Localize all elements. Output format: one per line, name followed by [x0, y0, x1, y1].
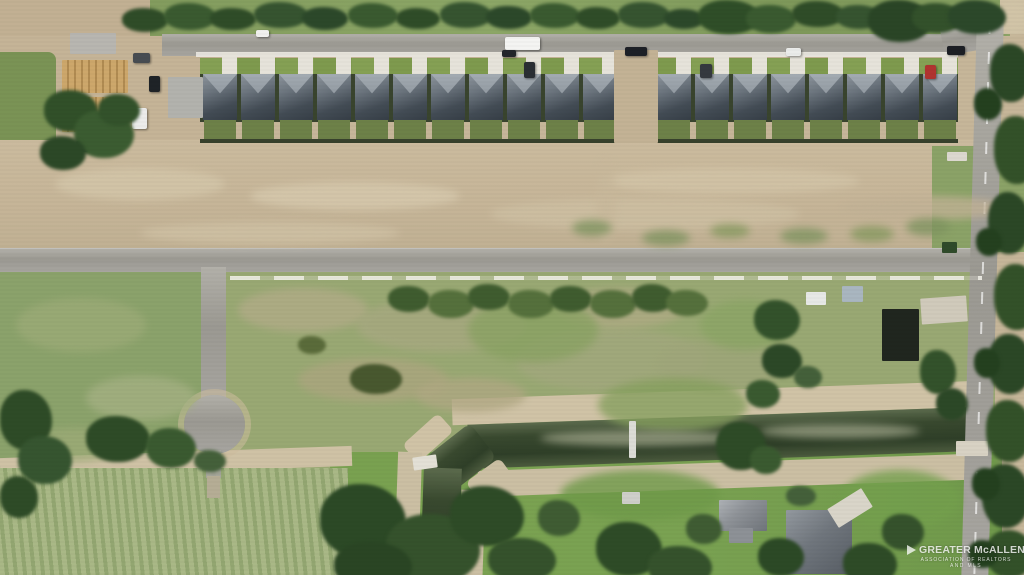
backyard: [204, 120, 236, 140]
ground-patch: [840, 196, 1010, 220]
driveway: [450, 52, 465, 76]
tree: [746, 5, 796, 33]
structure: [614, 50, 658, 143]
tree: [530, 3, 580, 28]
driveway: [866, 52, 881, 76]
back-fence: [730, 139, 768, 143]
driveway: [412, 52, 427, 76]
house-roof: [695, 74, 729, 120]
backyard: [356, 120, 388, 140]
tree: [350, 364, 402, 394]
ground-patch: [572, 220, 612, 236]
tree: [794, 366, 822, 388]
vehicle: [786, 48, 801, 56]
backyard: [508, 120, 540, 140]
back-fence: [542, 139, 580, 143]
driveway: [828, 52, 843, 76]
driveway: [752, 52, 767, 76]
vehicle: [133, 53, 150, 63]
roof-ridge-face: [203, 74, 237, 120]
structure: [882, 309, 919, 361]
back-fence: [920, 139, 958, 143]
ground-patch: [560, 470, 720, 520]
tree: [538, 500, 580, 536]
tree: [388, 286, 430, 312]
tree: [976, 228, 1002, 256]
structure: [62, 60, 128, 93]
driveway: [942, 52, 957, 76]
structure: [622, 492, 640, 504]
tree: [666, 290, 708, 316]
watermark-title-row: GREATER McALLEN: [912, 544, 1020, 556]
tree: [618, 2, 670, 28]
house-roof: [507, 74, 541, 120]
house-roof: [771, 74, 805, 120]
watermark-title: GREATER McALLEN: [919, 544, 1024, 556]
roof-ridge-face: [241, 74, 275, 120]
backyard: [848, 120, 880, 140]
house-roof: [469, 74, 503, 120]
driveway: [714, 52, 729, 76]
driveway: [488, 52, 503, 76]
driveway: [564, 52, 579, 76]
roof-ridge-face: [507, 74, 541, 120]
tree: [0, 476, 38, 518]
tree: [40, 136, 86, 170]
tree: [302, 7, 348, 30]
tree: [348, 3, 398, 28]
tree: [508, 290, 554, 318]
driveway: [336, 52, 351, 76]
driveway: [298, 52, 313, 76]
tree: [590, 290, 636, 318]
main-road-sidewalk: [230, 276, 982, 280]
backyard: [772, 120, 804, 140]
ground-patch: [598, 378, 748, 432]
tree: [754, 300, 800, 340]
house-roof: [733, 74, 767, 120]
back-fence: [428, 139, 466, 143]
roof-ridge-face: [583, 74, 617, 120]
watermark-subtitle2: AND MLS: [912, 563, 1020, 569]
house-roof: [279, 74, 313, 120]
house-roof: [355, 74, 389, 120]
backyard: [470, 120, 502, 140]
roof-ridge-face: [279, 74, 313, 120]
back-fence: [654, 139, 692, 143]
house-roof: [923, 74, 957, 120]
house-roof: [847, 74, 881, 120]
back-fence: [580, 139, 618, 143]
vehicle: [149, 76, 160, 92]
tree: [746, 380, 780, 408]
roof-ridge-face: [885, 74, 919, 120]
tree: [98, 94, 140, 126]
ground-patch: [140, 222, 400, 244]
back-fence: [768, 139, 806, 143]
driveway: [222, 52, 237, 76]
tree: [486, 6, 532, 29]
ground-patch: [642, 230, 690, 246]
vehicle: [700, 64, 712, 78]
main-road: [0, 248, 986, 272]
vehicle: [625, 47, 647, 56]
back-fence: [466, 139, 504, 143]
driveway: [676, 52, 691, 76]
house-roof: [545, 74, 579, 120]
structure: [920, 295, 968, 324]
backyard: [696, 120, 728, 140]
back-fence: [882, 139, 920, 143]
tree: [450, 486, 524, 546]
ground-patch: [16, 298, 146, 352]
driveway: [260, 52, 275, 76]
ground-patch: [416, 378, 526, 412]
back-fence: [276, 139, 314, 143]
tree: [440, 2, 492, 28]
tree: [948, 0, 1006, 34]
tree: [758, 538, 804, 575]
backyard: [810, 120, 842, 140]
roof-ridge-face: [545, 74, 579, 120]
house-roof: [203, 74, 237, 120]
tree: [936, 388, 968, 420]
backyard: [546, 120, 578, 140]
backyard: [658, 120, 690, 140]
roof-ridge-face: [695, 74, 729, 120]
house-roof: [431, 74, 465, 120]
house-roof: [885, 74, 919, 120]
ground-patch: [238, 288, 368, 332]
roof-ridge-face: [317, 74, 351, 120]
aerial-photo: GREATER McALLEN ASSOCIATION OF REALTORS …: [0, 0, 1024, 575]
house-roof: [317, 74, 351, 120]
house-roof: [583, 74, 617, 120]
stub-dirt-path: [207, 476, 220, 498]
driveway: [904, 52, 919, 76]
roof-ridge-face: [431, 74, 465, 120]
tree: [550, 286, 592, 312]
ground-patch: [780, 228, 828, 244]
tree: [786, 486, 816, 506]
tree: [974, 348, 1000, 378]
backyard: [318, 120, 350, 140]
roof-ridge-face: [923, 74, 957, 120]
ground-patch: [600, 168, 860, 194]
structure: [168, 77, 203, 118]
back-fence: [238, 139, 276, 143]
ground-patch: [850, 226, 894, 242]
structure: [629, 421, 636, 458]
structure: [806, 292, 826, 305]
tree: [686, 514, 722, 544]
ground-patch: [540, 430, 740, 446]
roof-ridge-face: [355, 74, 389, 120]
tree: [750, 446, 782, 474]
backyard: [734, 120, 766, 140]
tree: [994, 264, 1024, 330]
ground-patch: [760, 424, 920, 438]
tree: [122, 8, 168, 32]
ground-patch: [55, 168, 225, 200]
backyard: [394, 120, 426, 140]
ground-patch: [490, 198, 800, 230]
backyard: [584, 120, 616, 140]
ground-patch: [250, 182, 460, 210]
backyard: [242, 120, 274, 140]
house-roof: [241, 74, 275, 120]
back-fence: [390, 139, 428, 143]
tree: [972, 468, 1000, 500]
house-roof: [809, 74, 843, 120]
tree: [210, 8, 256, 30]
gmar-logo-icon: [907, 545, 916, 555]
driveway: [374, 52, 389, 76]
cul-de-sac-street: [201, 267, 226, 401]
ground-patch: [710, 224, 750, 238]
tree: [164, 3, 216, 30]
house-roof: [657, 74, 691, 120]
ground-patch: [906, 218, 950, 236]
tree: [254, 2, 308, 28]
structure: [942, 242, 957, 253]
tree: [86, 416, 150, 462]
tree: [146, 428, 196, 468]
backyard: [432, 120, 464, 140]
vehicle: [524, 62, 535, 78]
tree: [194, 450, 226, 472]
vehicle: [505, 37, 540, 50]
structure: [719, 500, 767, 531]
back-fence: [314, 139, 352, 143]
back-fence: [844, 139, 882, 143]
tree: [468, 284, 510, 310]
backyard: [886, 120, 918, 140]
roof-ridge-face: [809, 74, 843, 120]
backyard: [280, 120, 312, 140]
roof-ridge-face: [393, 74, 427, 120]
structure: [956, 441, 988, 456]
tree: [396, 8, 440, 29]
backyard: [924, 120, 956, 140]
row-crop-field: [0, 468, 348, 575]
structure: [729, 528, 753, 543]
roof-ridge-face: [847, 74, 881, 120]
back-fence: [352, 139, 390, 143]
vehicle: [502, 50, 516, 57]
vehicle: [947, 46, 965, 55]
structure: [70, 33, 116, 54]
vehicle: [925, 65, 936, 79]
roof-ridge-face: [771, 74, 805, 120]
structure: [947, 152, 967, 161]
tree: [576, 7, 620, 29]
back-fence: [692, 139, 730, 143]
roof-ridge-face: [657, 74, 691, 120]
mls-watermark: GREATER McALLEN ASSOCIATION OF REALTORS …: [912, 544, 1020, 569]
roof-ridge-face: [469, 74, 503, 120]
tree: [298, 336, 326, 354]
tree: [986, 400, 1024, 462]
tree: [974, 88, 1002, 120]
back-fence: [200, 139, 238, 143]
vehicle: [256, 30, 269, 37]
roof-ridge-face: [733, 74, 767, 120]
structure: [842, 286, 863, 302]
ground-patch: [86, 376, 196, 420]
back-fence: [806, 139, 844, 143]
back-fence: [504, 139, 542, 143]
house-roof: [393, 74, 427, 120]
